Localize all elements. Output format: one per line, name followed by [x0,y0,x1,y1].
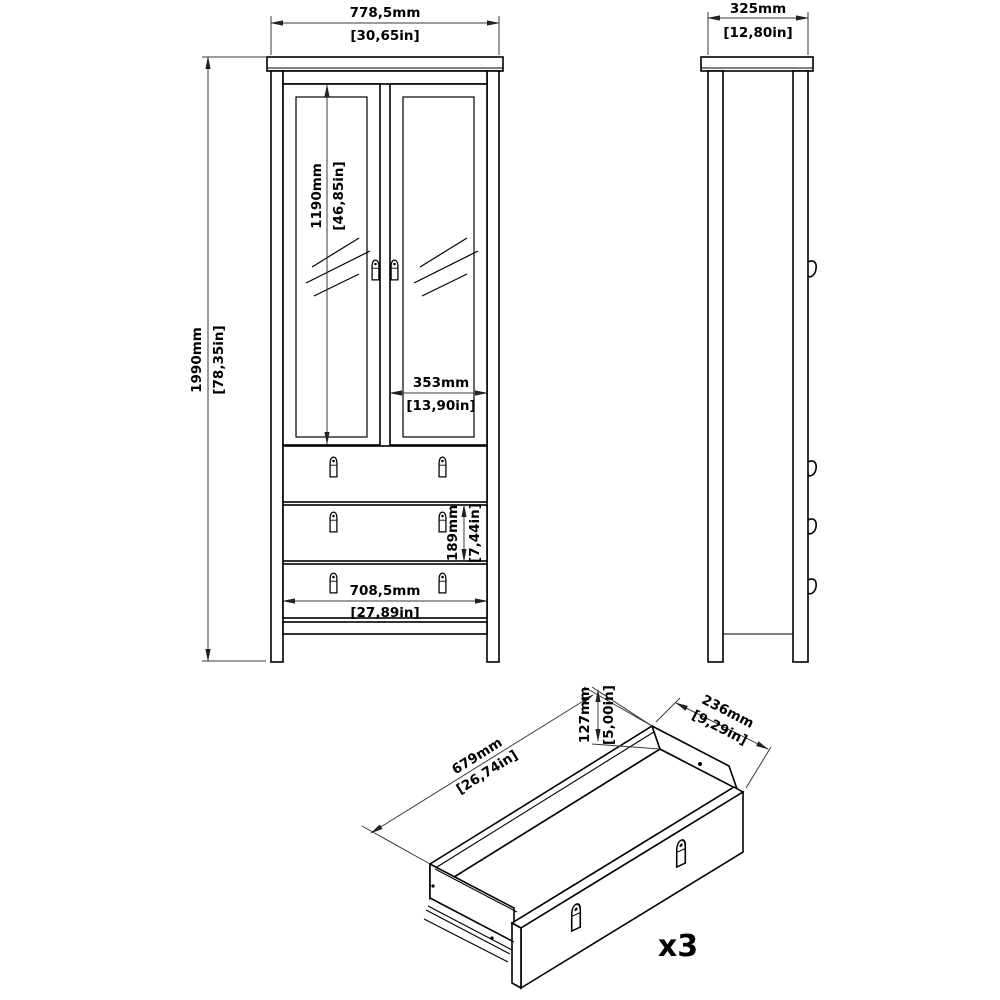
dimension-label-mm: 127mm [577,687,593,743]
door-handle-icon [391,260,398,280]
drawer-front-panel-edge [512,923,521,988]
drawer-handle-icon [330,457,337,477]
right-stile [487,71,499,662]
top-rail [283,71,487,84]
side-view: 325mm [12,80in] [701,1,816,662]
door-handle-icon [372,260,379,280]
drawer-detail-view: 679mm [26,74in] 127mm [5,00in] 236mm [9,… [362,685,771,988]
cabinet-front [267,57,503,662]
drawer-handle-side-icon [808,579,816,594]
furniture-dimension-drawing: 778,5mm [30,65in] 1990mm [78,35in] [0,0,1000,1000]
bottom-rail [283,622,487,634]
front-view: 778,5mm [30,65in] 1990mm [78,35in] [189,5,503,662]
screw-dot [490,936,493,939]
drawer-handle-icon [572,902,581,931]
extension-line [584,687,652,726]
top-panel-side [701,57,813,71]
overall-height-dimension: 1990mm [78,35in] [189,57,266,661]
overall-width-dimension: 778,5mm [30,65in] [271,5,499,55]
quantity-label: x3 [658,929,698,964]
dimension-label-mm: 325mm [730,1,786,17]
extension-line [656,698,680,722]
dimension-label-inch: [13,90in] [406,398,475,414]
door-handle-side-icon [808,261,816,277]
drawer-handle-icon [439,573,446,593]
drawer-handle-icon [677,838,686,867]
drawer-handle-side-icon [808,461,816,476]
dimension-label-inch: [27,89in] [350,605,419,621]
drawer-height-dimension: 189mm [7,44in] [445,503,483,563]
cabinet-side [701,57,816,662]
technical-drawing-canvas: 778,5mm [30,65in] 1990mm [78,35in] [0,0,1000,1000]
dimension-label-mm: 1990mm [189,327,205,393]
drawer-handle-icon [439,457,446,477]
dimension-label-inch: [5,00in] [601,685,617,745]
drawer-handle-side-icon [808,519,816,534]
dimension-label-mm: 708,5mm [350,583,421,599]
dimension-label-inch: [12,80in] [723,25,792,41]
extension-line [746,747,771,788]
depth-dimension: 325mm [12,80in] [708,1,808,55]
front-post [793,71,808,662]
dimension-label-mm: 1190mm [309,163,325,229]
drawer-front-1 [283,446,487,502]
drawer-handle-icon [330,573,337,593]
top-panel [267,57,503,71]
dimension-label-inch: [78,35in] [211,325,227,394]
dimension-label-mm: 778,5mm [350,5,421,21]
screw-hole [698,762,702,766]
drawer-handle-icon [330,512,337,532]
back-post [708,71,723,662]
dimension-label-inch: [46,85in] [331,161,347,230]
dimension-label-inch: [30,65in] [350,28,419,44]
dimension-label-mm: 189mm [445,505,461,561]
dimension-label-mm: 353mm [413,375,469,391]
left-door [283,84,380,445]
left-stile [271,71,283,662]
dimension-label-inch: [7,44in] [467,503,483,563]
screw-dot [431,884,434,887]
